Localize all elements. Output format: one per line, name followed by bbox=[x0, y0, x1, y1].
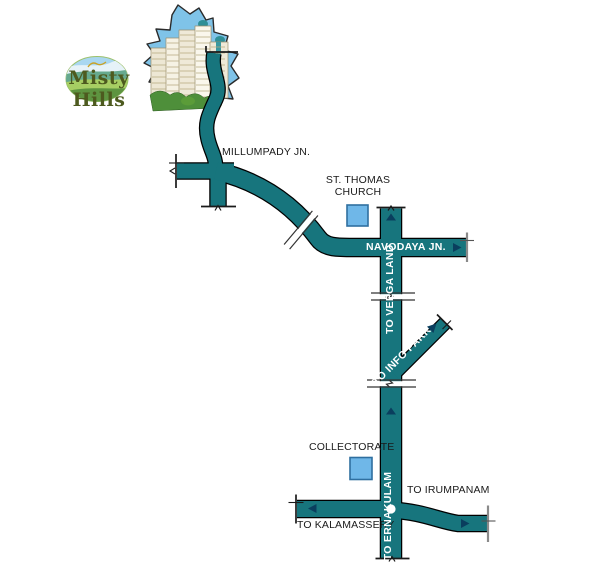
label-collectorate: COLLECTORATE bbox=[309, 441, 394, 453]
label-to-veega-land: TO VEEGA LAND bbox=[384, 246, 396, 334]
label-st-thomas-line2: CHURCH bbox=[312, 186, 404, 198]
label-to-kalamassery: TO KALAMASSERY bbox=[297, 519, 394, 531]
label-st-thomas-church: ST. THOMAS CHURCH bbox=[312, 174, 404, 198]
label-to-irumpanam: TO IRUMPANAM bbox=[407, 484, 490, 496]
misty-hills-logo-text: Misty Hills bbox=[44, 67, 154, 111]
collectorate-marker bbox=[350, 458, 372, 480]
label-to-ernakulam: TO ERNAKULAM bbox=[382, 470, 394, 562]
road-to-irumpanam bbox=[391, 510, 488, 524]
road-surfaces bbox=[177, 53, 488, 558]
road-outlines bbox=[177, 53, 488, 558]
st-thomas-church-marker bbox=[347, 205, 368, 226]
label-millumpady-jn: MILLUMPADY JN. bbox=[222, 146, 310, 158]
location-map: Misty Hills MILLUMPADY JN. ST. THOMAS CH… bbox=[0, 0, 600, 576]
label-st-thomas-line1: ST. THOMAS bbox=[312, 174, 404, 186]
label-navodaya-jn: NAVODAYA JN. bbox=[366, 241, 446, 253]
road-from-site bbox=[207, 53, 219, 171]
